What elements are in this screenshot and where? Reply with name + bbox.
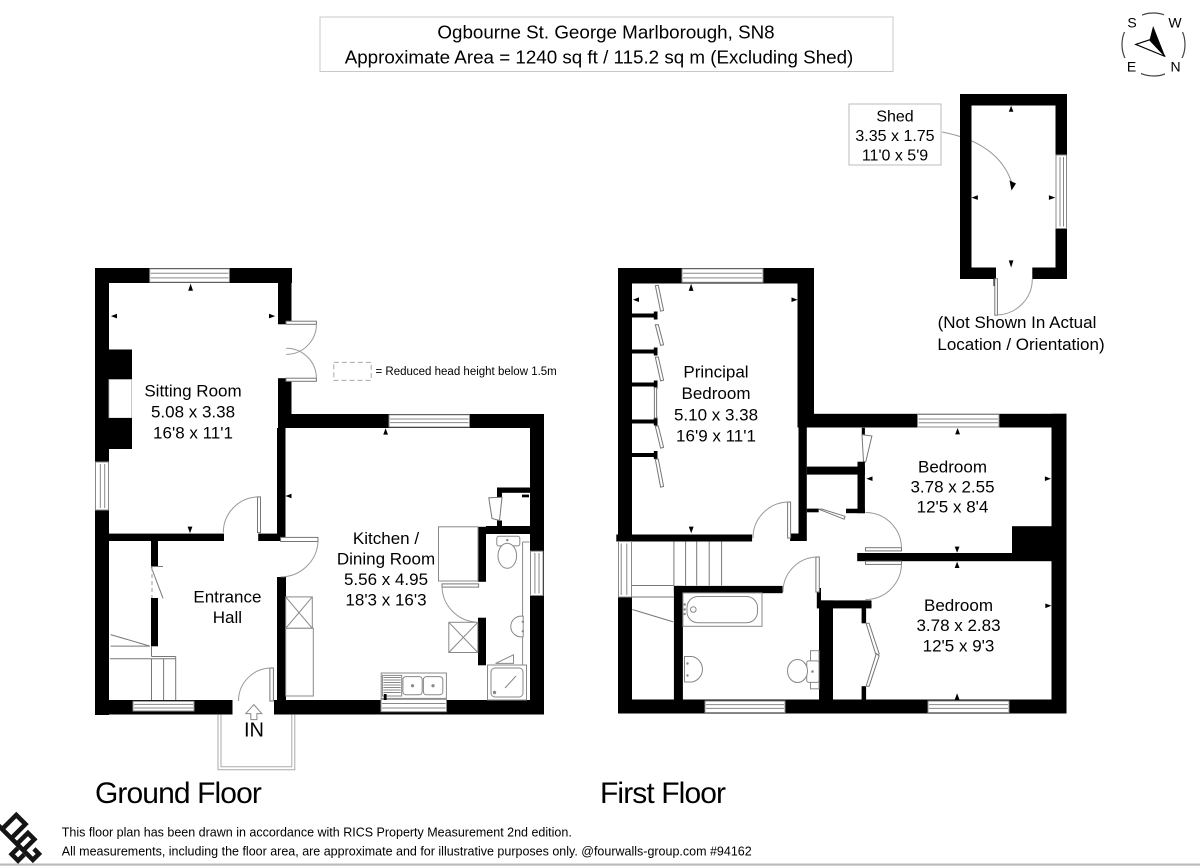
svg-text:IN: IN <box>244 720 264 742</box>
svg-text:Hall: Hall <box>213 608 242 627</box>
svg-text:E: E <box>1127 59 1136 75</box>
svg-text:5.08 x 3.38: 5.08 x 3.38 <box>151 402 235 421</box>
svg-text:18'3 x 16'3: 18'3 x 16'3 <box>345 591 426 610</box>
svg-text:S: S <box>1127 15 1136 31</box>
svg-text:Ground Floor: Ground Floor <box>95 777 262 810</box>
svg-text:3.78 x 2.55: 3.78 x 2.55 <box>910 478 994 497</box>
svg-text:12'5 x 8'4: 12'5 x 8'4 <box>917 498 989 517</box>
svg-text:Ogbourne St. George Marlboroug: Ogbourne St. George Marlborough, SN8 <box>437 22 774 43</box>
svg-text:16'9 x 11'1: 16'9 x 11'1 <box>676 427 756 446</box>
svg-text:16'8 x 11'1: 16'8 x 11'1 <box>153 423 233 442</box>
svg-text:First Floor: First Floor <box>600 777 726 810</box>
svg-text:Principal: Principal <box>683 363 748 382</box>
svg-text:Shed: Shed <box>876 109 913 126</box>
svg-text:Bedroom: Bedroom <box>918 458 987 477</box>
svg-text:11'0 x 5'9: 11'0 x 5'9 <box>862 148 928 165</box>
svg-text:Approximate Area = 1240 sq ft: Approximate Area = 1240 sq ft / 115.2 sq… <box>345 47 854 68</box>
svg-text:= Reduced head height below 1.: = Reduced head height below 1.5m <box>376 366 557 378</box>
svg-text:Location / Orientation): Location / Orientation) <box>937 335 1104 354</box>
svg-text:Entrance: Entrance <box>193 587 261 606</box>
svg-text:3.35 x 1.75: 3.35 x 1.75 <box>855 128 934 145</box>
svg-text:Kitchen /: Kitchen / <box>353 529 419 548</box>
svg-text:(Not Shown In Actual: (Not Shown In Actual <box>938 313 1097 332</box>
svg-text:Bedroom: Bedroom <box>924 596 993 615</box>
svg-text:W: W <box>1168 15 1182 31</box>
svg-text:All measurements, including th: All measurements, including the floor ar… <box>62 845 752 859</box>
svg-text:Sitting Room: Sitting Room <box>144 381 241 400</box>
svg-text:This floor plan has been drawn: This floor plan has been drawn in accord… <box>62 826 572 840</box>
svg-text:Bedroom: Bedroom <box>682 384 751 403</box>
svg-text:3.78 x 2.83: 3.78 x 2.83 <box>916 616 1000 635</box>
svg-text:5.56 x 4.95: 5.56 x 4.95 <box>344 570 428 589</box>
svg-text:Dining Room: Dining Room <box>337 550 435 569</box>
svg-text:5.10 x 3.38: 5.10 x 3.38 <box>674 406 758 425</box>
svg-text:12'5 x 9'3: 12'5 x 9'3 <box>923 636 995 655</box>
svg-text:N: N <box>1170 59 1180 75</box>
